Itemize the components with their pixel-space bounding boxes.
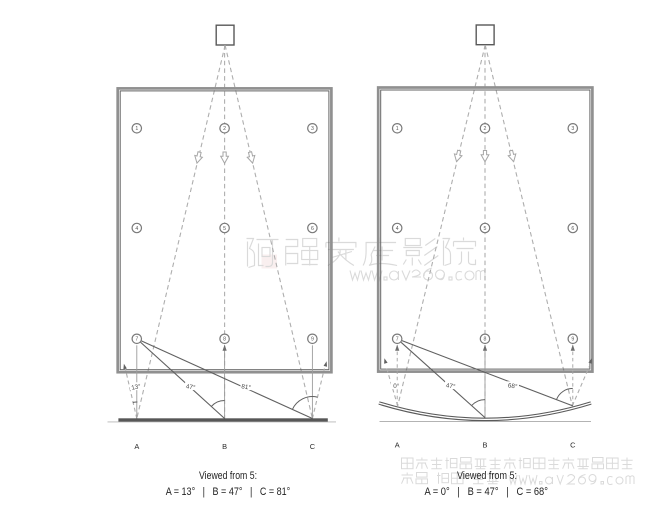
svg-text:8: 8 (223, 337, 226, 343)
svg-text:3: 3 (311, 126, 314, 132)
svg-text:1: 1 (135, 126, 138, 132)
svg-text:81°: 81° (241, 382, 252, 391)
svg-text:5: 5 (223, 226, 226, 232)
svg-text:1: 1 (396, 126, 399, 132)
svg-text:9: 9 (571, 337, 574, 343)
svg-text:B: B (222, 442, 227, 451)
svg-text:C: C (310, 442, 316, 451)
svg-text:A: A (395, 440, 400, 449)
svg-text:47°: 47° (185, 382, 196, 391)
svg-text:9: 9 (311, 337, 314, 343)
svg-text:47°: 47° (445, 381, 456, 390)
svg-text:6: 6 (311, 226, 314, 232)
svg-text:5: 5 (484, 226, 487, 232)
svg-text:2: 2 (484, 126, 487, 132)
svg-text:B: B (483, 440, 488, 449)
svg-text:2: 2 (223, 126, 226, 132)
svg-text:3: 3 (571, 126, 574, 132)
svg-text:Viewed from 5:: Viewed from 5: (457, 470, 517, 482)
svg-text:7: 7 (135, 337, 138, 343)
svg-text:Viewed from 5:: Viewed from 5: (199, 470, 257, 482)
svg-text:A: A (134, 442, 139, 451)
svg-text:0°: 0° (393, 382, 400, 390)
svg-text:4: 4 (135, 226, 138, 232)
svg-text:8: 8 (484, 337, 487, 343)
svg-text:4: 4 (396, 226, 399, 232)
svg-text:A = 13° | B = 47° | C: A = 13° | B = 47° | C = 81° (166, 486, 291, 498)
svg-text:7: 7 (396, 337, 399, 343)
svg-text:68°: 68° (507, 381, 518, 390)
svg-text:A = 0° | B = 47° | C =: A = 0° | B = 47° | C = 68° (424, 486, 548, 498)
svg-text:6: 6 (571, 226, 574, 232)
svg-text:C: C (570, 440, 576, 449)
